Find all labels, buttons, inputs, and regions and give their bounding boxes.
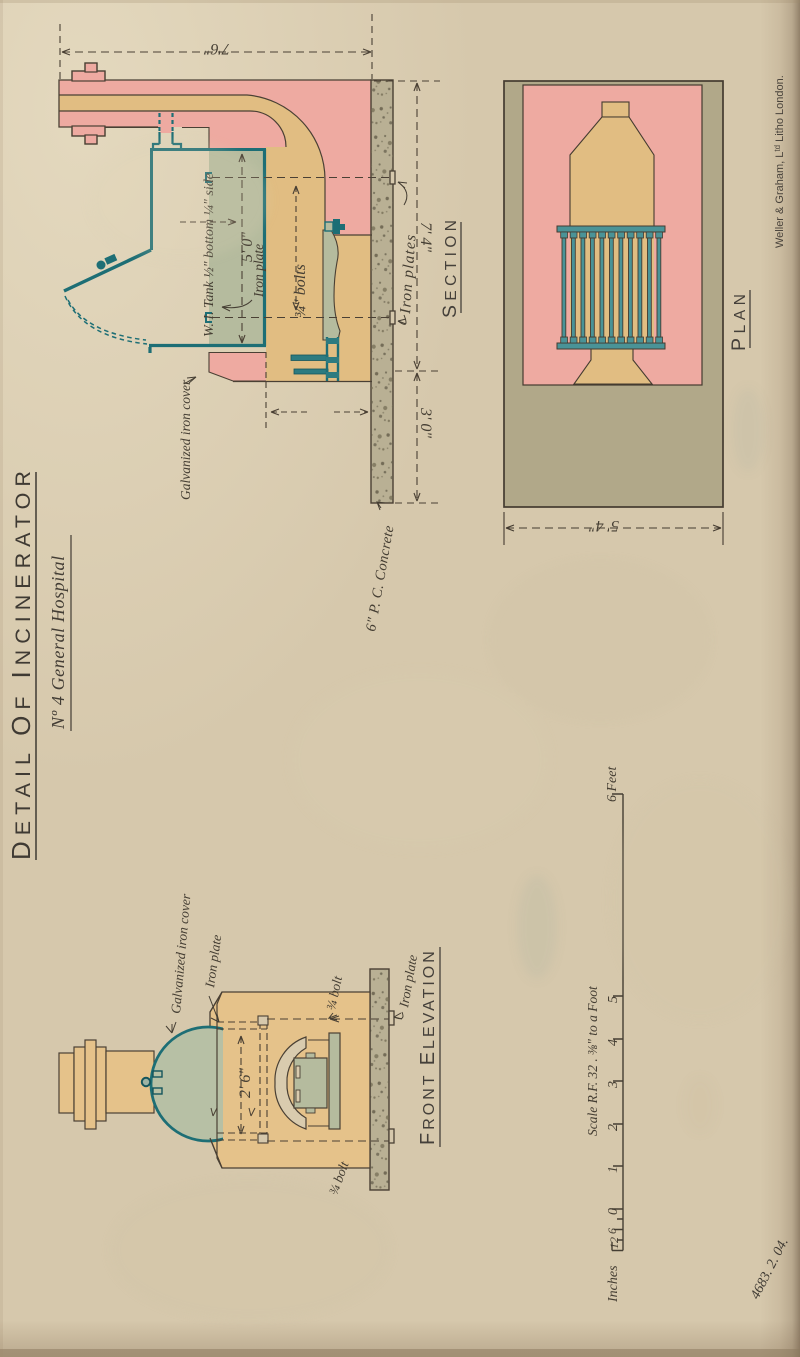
svg-text:2' 6": 2' 6"	[237, 1068, 254, 1098]
svg-text:Inches: Inches	[606, 1265, 621, 1303]
svg-text:5' 4": 5' 4"	[589, 517, 619, 534]
svg-text:1: 1	[606, 1166, 621, 1173]
svg-text:Iron plate: Iron plate	[251, 244, 266, 298]
svg-text:Galvanized iron cover: Galvanized iron cover	[178, 379, 193, 500]
svg-text:Nº 4 General Hospital: Nº 4 General Hospital	[48, 555, 68, 730]
svg-text:3: 3	[606, 1081, 621, 1089]
svg-text:Scale R.F. 32 . ⅜" to a Foot: Scale R.F. 32 . ⅜" to a Foot	[585, 985, 600, 1136]
svg-text:5: 5	[606, 996, 621, 1003]
svg-text:DETAIL OF INCINERATOR: DETAIL OF INCINERATOR	[6, 465, 36, 860]
svg-text:3' 0": 3' 0"	[417, 407, 434, 438]
svg-text:12: 12	[607, 1237, 621, 1249]
svg-text:PLAN: PLAN	[728, 289, 750, 351]
svg-text:2: 2	[606, 1124, 621, 1131]
svg-text:0: 0	[606, 1208, 621, 1215]
svg-text:Weller & Graham, Ltd Litho Lon: Weller & Graham, Ltd Litho London.	[773, 75, 786, 248]
svg-text:¾" bolts: ¾" bolts	[292, 264, 309, 318]
svg-text:6: 6	[605, 1228, 619, 1234]
svg-text:FRONT ELEVATION: FRONT ELEVATION	[417, 948, 439, 1145]
svg-text:SECTION: SECTION	[439, 216, 461, 318]
svg-text:6 Feet: 6 Feet	[605, 766, 620, 802]
svg-text:7'6": 7'6"	[204, 40, 230, 57]
svg-text:7' 4": 7' 4"	[417, 222, 434, 252]
svg-text:4: 4	[606, 1039, 621, 1046]
